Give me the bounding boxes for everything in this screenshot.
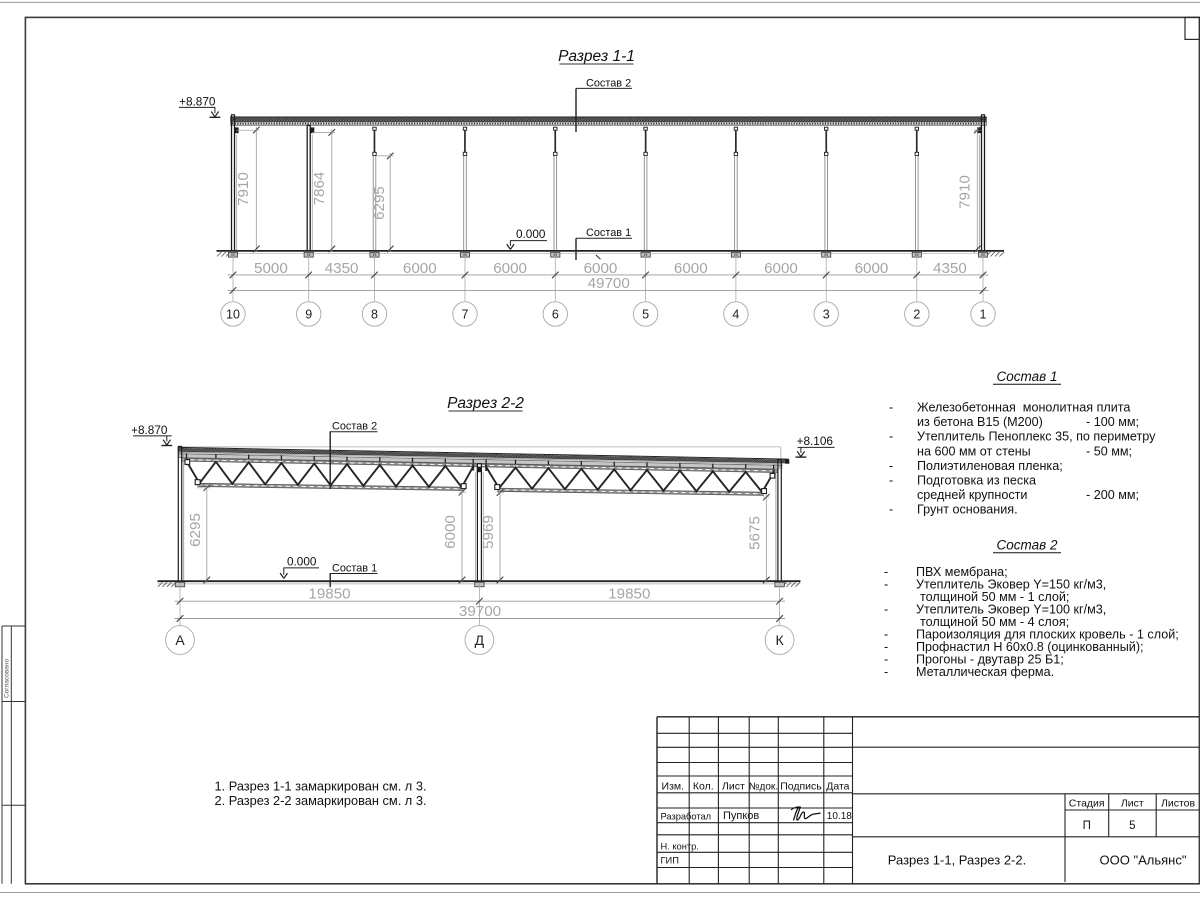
svg-text:Состав 1: Состав 1 <box>997 369 1058 384</box>
svg-text:Состав 2: Состав 2 <box>332 421 377 433</box>
svg-text:-: - <box>884 577 888 591</box>
svg-text:Н. контр.: Н. контр. <box>661 842 699 852</box>
svg-text:0.000: 0.000 <box>516 227 546 241</box>
svg-text:6: 6 <box>552 307 559 321</box>
svg-text:+8.870: +8.870 <box>131 423 168 437</box>
svg-text:2: 2 <box>913 307 920 321</box>
svg-text:8: 8 <box>371 307 378 321</box>
svg-text:на 600 мм от стены: на 600 мм от стены <box>917 444 1031 458</box>
svg-text:П: П <box>1083 820 1091 832</box>
svg-text:7: 7 <box>462 307 469 321</box>
svg-text:6000: 6000 <box>855 260 889 277</box>
svg-text:6000: 6000 <box>674 260 708 277</box>
svg-text:Подпись: Подпись <box>780 780 822 792</box>
svg-text:19850: 19850 <box>308 586 350 603</box>
svg-text:6000: 6000 <box>493 260 527 277</box>
svg-text:6295: 6295 <box>371 186 388 220</box>
svg-text:0.000: 0.000 <box>287 554 317 568</box>
svg-text:7864: 7864 <box>311 172 328 206</box>
svg-text:10.18: 10.18 <box>827 811 852 822</box>
svg-text:2. Разрез 2-2 замаркирован см.: 2. Разрез 2-2 замаркирован см. л 3. <box>215 793 427 808</box>
svg-text:-: - <box>889 459 893 473</box>
svg-text:5675: 5675 <box>746 516 763 550</box>
svg-text:Металлическая ферма.: Металлическая ферма. <box>916 665 1054 679</box>
svg-text:Кол.: Кол. <box>693 780 714 792</box>
svg-text:19850: 19850 <box>608 586 650 603</box>
svg-text:Железобетонная монолитная пли: Железобетонная монолитная плита <box>917 401 1130 415</box>
svg-text:1. Разрез 1-1 замаркирован см.: 1. Разрез 1-1 замаркирован см. л 3. <box>215 779 427 794</box>
svg-text:Листов: Листов <box>1161 798 1196 810</box>
svg-text:Подготовка из песка: Подготовка из песка <box>917 474 1036 488</box>
svg-text:ООО "Альянс": ООО "Альянс" <box>1100 853 1187 868</box>
svg-text:6000: 6000 <box>403 260 437 277</box>
svg-text:Разрез 1-1, Разрез 2-2.: Разрез 1-1, Разрез 2-2. <box>888 853 1026 868</box>
svg-text:4350: 4350 <box>933 260 967 277</box>
svg-text:-: - <box>884 665 888 679</box>
svg-text:3: 3 <box>823 307 830 321</box>
svg-text:Пупков: Пупков <box>723 810 759 822</box>
svg-text:9: 9 <box>305 307 312 321</box>
svg-text:Разрез 2-2: Разрез 2-2 <box>447 395 524 412</box>
svg-text:7910: 7910 <box>235 172 252 206</box>
svg-text:ГИП: ГИП <box>661 856 679 866</box>
svg-text:Утеплитель Пеноплекс 35, по пе: Утеплитель Пеноплекс 35, по периметру <box>917 430 1156 444</box>
svg-text:Состав 1: Состав 1 <box>586 227 631 239</box>
svg-text:-: - <box>889 401 893 415</box>
svg-text:- 200 мм;: - 200 мм; <box>1086 488 1139 502</box>
svg-text:-: - <box>884 602 888 616</box>
svg-text:Лист: Лист <box>722 780 745 792</box>
svg-text:- 50 мм;: - 50 мм; <box>1086 444 1132 458</box>
svg-text:6295: 6295 <box>187 513 204 547</box>
svg-text:№док.: №док. <box>749 781 778 792</box>
svg-text:5969: 5969 <box>480 515 497 549</box>
svg-text:4: 4 <box>732 307 739 321</box>
svg-text:Полиэтиленовая пленка;: Полиэтиленовая пленка; <box>917 459 1063 473</box>
svg-text:6000: 6000 <box>764 260 798 277</box>
svg-text:Разработал: Разработал <box>661 811 712 821</box>
svg-text:7910: 7910 <box>957 175 974 209</box>
svg-text:Состав 2: Состав 2 <box>586 77 631 89</box>
svg-text:Разрез 1-1: Разрез 1-1 <box>558 48 635 65</box>
svg-text:10: 10 <box>226 307 240 321</box>
svg-text:5: 5 <box>642 307 649 321</box>
svg-text:- 100 мм;: - 100 мм; <box>1086 415 1139 429</box>
svg-text:Состав 1: Состав 1 <box>332 562 377 574</box>
svg-text:Состав 2: Состав 2 <box>997 538 1058 553</box>
svg-text:4350: 4350 <box>325 260 359 277</box>
svg-text:Стадия: Стадия <box>1069 798 1105 810</box>
svg-text:1: 1 <box>980 307 987 321</box>
svg-text:Грунт основания.: Грунт основания. <box>917 503 1018 517</box>
svg-text:-: - <box>889 503 893 517</box>
svg-text:Согласовано: Согласовано <box>4 659 11 698</box>
svg-text:39700: 39700 <box>459 603 501 620</box>
svg-text:А: А <box>175 632 185 648</box>
svg-text:Д: Д <box>475 632 485 648</box>
svg-text:из бетона В15 (М200): из бетона В15 (М200) <box>917 415 1043 429</box>
svg-text:-: - <box>889 430 893 444</box>
svg-text:+8.106: +8.106 <box>797 434 834 448</box>
svg-text:6000: 6000 <box>442 515 459 549</box>
svg-text:Лист: Лист <box>1121 798 1144 810</box>
svg-text:средней крупности: средней крупности <box>917 488 1027 502</box>
svg-text:5000: 5000 <box>254 260 288 277</box>
svg-text:+8.870: +8.870 <box>179 94 216 108</box>
svg-text:Изм.: Изм. <box>662 780 685 792</box>
svg-text:49700: 49700 <box>588 275 630 292</box>
svg-text:-: - <box>889 474 893 488</box>
svg-text:К: К <box>776 632 785 648</box>
svg-text:Дата: Дата <box>826 780 849 792</box>
svg-text:5: 5 <box>1129 820 1135 832</box>
